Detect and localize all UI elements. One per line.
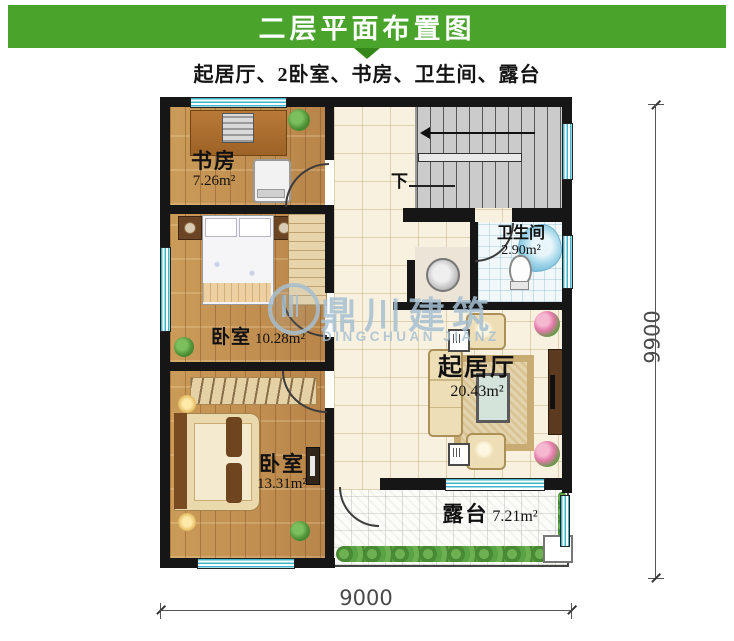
label-living: 起居厅 20.43m² [422,355,532,401]
terrace-greenery [336,546,565,562]
wall-segment [160,97,170,247]
dimension-line-bottom [160,610,572,611]
stair-direction-arrow-icon [420,127,430,139]
title-banner: 二层平面布置图 [8,5,726,48]
bedroom-lower-lamp-bottom [178,513,196,531]
bedroom-mid-name: 卧室 [211,327,251,348]
bathroom-name: 卫生间 [482,225,560,243]
bedroom-mid-bed-foot [203,283,271,302]
window-stairs-right [562,123,573,180]
wall-segment [160,362,334,371]
armchair-bottom [466,433,506,470]
study-area: 7.26m² [172,173,256,190]
bedroom-lower-area: 13.31m² [240,476,324,493]
wall-segment [325,205,334,293]
nightstand-left [178,216,202,240]
stair-railing [418,153,522,162]
bedroom-lower-name: 卧室 [240,452,324,476]
bedroom-lower-bolster-top [226,417,242,457]
floor-plan: 下 [160,97,572,583]
room-summary: 起居厅、2卧室、书房、卫生间、露台 [0,58,734,87]
page: { "header": { "title": "二层平面布置图", "subti… [0,0,734,641]
page-title: 二层平面布置图 [259,7,476,46]
bedroom-lower-headboard [174,413,187,509]
wall-segment [325,408,334,568]
bathroom-area: 2.90m² [482,243,560,259]
study-name: 书房 [172,149,256,173]
dimension-line-right [655,104,656,578]
flower-plant-bottom [534,441,560,467]
wall-segment [512,208,562,222]
watermark-logo-icon [268,283,320,335]
label-bedroom-lower: 卧室 13.31m² [240,452,324,493]
living-tv [550,375,555,409]
bedroom-lower-lamp-top [178,395,196,413]
dimension-right-value: 9900 [641,310,665,363]
wall-segment [562,178,572,235]
label-study: 书房 7.26m² [172,149,256,190]
window-bedroom-mid-left [160,247,171,332]
wall-segment [160,558,197,568]
side-table-bottom [448,443,470,466]
bedroom-lower-plant [290,521,310,541]
label-terrace: 露台 7.21m² [410,502,570,526]
stairs-down-leader-line [409,185,455,187]
study-chair-back [257,189,285,198]
wall-segment [543,478,562,490]
toilet-tank [510,281,529,290]
living-area: 20.43m² [422,383,532,401]
window-study-top [190,97,287,108]
terrace-area: 7.21m² [492,508,537,525]
stairs-down-label: 下 [391,167,408,192]
terrace-name: 露台 [442,502,488,526]
flower-plant-top [534,311,560,337]
dimension-bottom-value: 9000 [160,586,572,610]
window-bathroom-right [562,235,573,289]
stair-direction-line [429,132,535,134]
wall-segment [562,287,572,493]
label-bathroom: 卫生间 2.90m² [482,225,560,259]
pillow-right [239,218,271,237]
watermark-latin: DINGCHUAN JIANZ [322,329,500,344]
wall-segment [562,97,572,123]
wall-segment [380,478,445,490]
wall-segment [403,208,475,222]
wall-segment [325,97,334,160]
study-plant [288,109,310,131]
window-bedroom-lower-bottom [197,558,295,569]
pillow-left [205,218,237,237]
study-computer [222,113,254,143]
window-living-terrace [445,478,545,491]
living-name: 起居厅 [422,355,532,383]
